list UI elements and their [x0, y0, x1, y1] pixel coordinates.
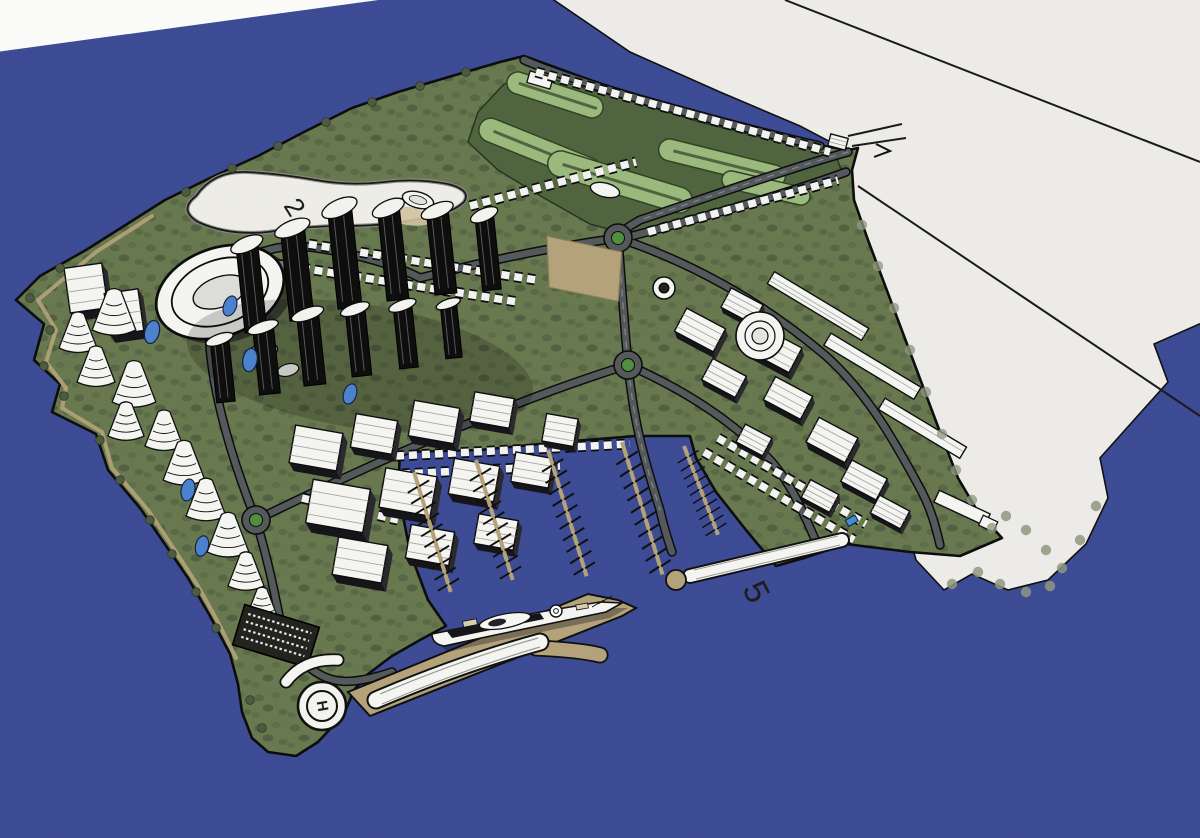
ship-helipad — [550, 605, 562, 617]
masterplan-rendering: 2 — [0, 0, 1200, 838]
roundabout-center — [614, 351, 642, 379]
roundabout-west — [242, 506, 270, 534]
masterplan-canvas: 2 — [0, 0, 1200, 838]
roundabout-north — [604, 224, 632, 252]
round-tower — [653, 277, 675, 299]
pier5-breakwater-tip — [666, 570, 686, 590]
lake: 2 — [187, 172, 466, 233]
spiral-building — [736, 312, 784, 360]
